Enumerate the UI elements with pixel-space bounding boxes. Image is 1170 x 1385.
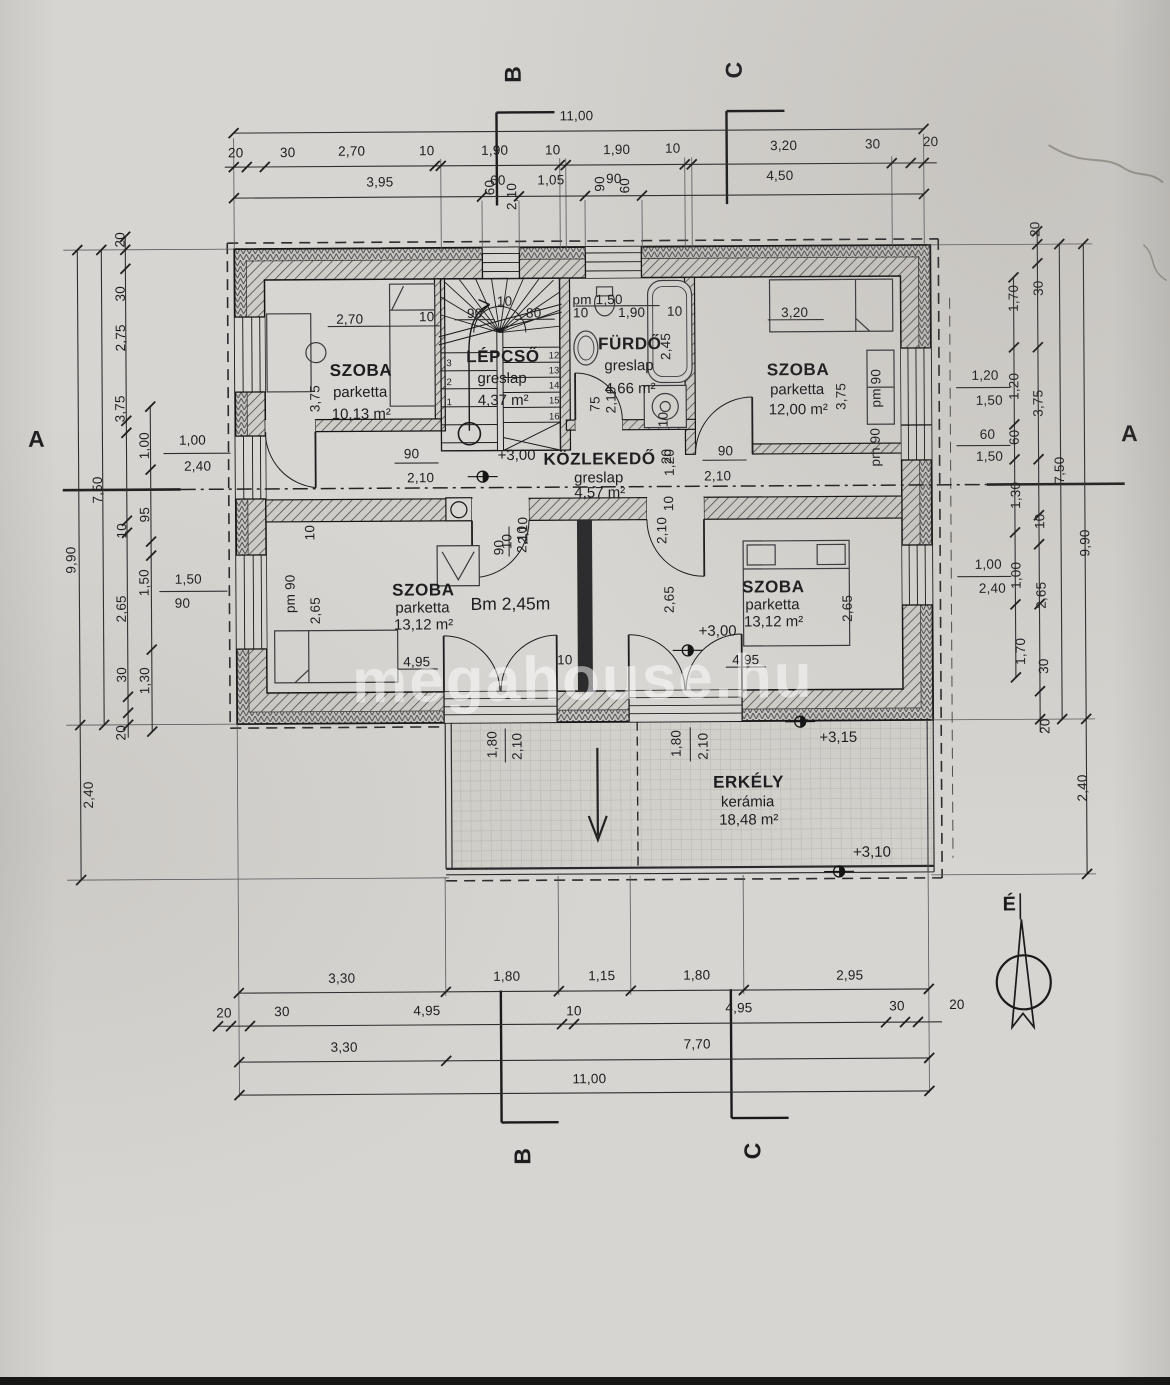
- room-area-label: 10,13 m²: [332, 407, 391, 422]
- room-area-label: 4,57 m²: [574, 485, 625, 500]
- dim-label: 1,20: [1007, 373, 1021, 400]
- dim-label: 1,20: [971, 369, 998, 383]
- hall-cabinet: [446, 498, 472, 521]
- dim-label: 10: [662, 496, 676, 512]
- dim-label: 30: [1037, 658, 1051, 674]
- dim-label: 1,00: [1009, 562, 1023, 589]
- dim-label: 10: [1033, 513, 1047, 529]
- dim-label: 3,75: [113, 395, 127, 422]
- paper-crease-marks: [1049, 144, 1167, 281]
- dim-label: 1,50: [137, 569, 151, 596]
- dim-label: 20: [1028, 221, 1042, 237]
- room-floor-label: greslap: [574, 470, 623, 485]
- dim-label: 95: [138, 507, 152, 523]
- dim-label: 2,40: [1076, 774, 1090, 801]
- dim-label: 10: [115, 523, 129, 539]
- room-area-label: 13,12 m²: [744, 614, 803, 629]
- dim-label: 90: [718, 444, 734, 458]
- dim-label: 20: [113, 232, 127, 248]
- dim-label: 20: [923, 135, 939, 149]
- dim-label: 3,30: [328, 972, 355, 986]
- room-floor-label: parketta: [333, 385, 387, 400]
- dim-label: 2,95: [836, 969, 863, 983]
- dim-label: 30: [889, 999, 905, 1013]
- dim-label: 90: [175, 597, 191, 611]
- room-area-label: 4,66 m²: [605, 381, 656, 396]
- north-label: É: [1003, 894, 1016, 914]
- room-name-label: ERKÉLY: [713, 773, 784, 790]
- dim-label: 1,30: [138, 667, 152, 694]
- dim-label: 4,95: [725, 1001, 752, 1015]
- dim-label: 7,50: [1053, 457, 1067, 484]
- dim-label: 1,80: [669, 730, 683, 757]
- dim-label: 2,10: [515, 526, 529, 553]
- level-label: +3,15: [819, 730, 857, 745]
- dim-label: 2,40: [82, 781, 96, 808]
- dim-label: 10: [419, 144, 435, 158]
- dim-label: 2: [446, 378, 451, 388]
- dim-label: 2,70: [338, 145, 365, 159]
- dim-label: 60: [980, 428, 996, 442]
- dim-label: 90: [593, 176, 607, 192]
- ceiling-height-label: Bm 2,45m: [471, 595, 551, 613]
- dim-label: 4,95: [413, 1004, 440, 1018]
- dim-label: 15: [549, 396, 560, 406]
- dim-label: 60: [1008, 430, 1022, 446]
- floor-plan-drawing: [0, 0, 1170, 1385]
- dim-label: 9,90: [64, 547, 78, 574]
- dim-label: 2,10: [704, 469, 731, 483]
- dim-label: 10: [566, 1004, 582, 1018]
- dim-label: 20: [1038, 718, 1052, 734]
- dim-label: 1,50: [976, 450, 1003, 464]
- section-letter: A: [28, 428, 45, 451]
- dim-label: 1,90: [481, 144, 508, 158]
- dim-label: 16: [549, 412, 560, 422]
- dim-label: 1: [447, 398, 452, 408]
- dim-label: 30: [274, 1005, 290, 1019]
- room-area-label: 12,00 m²: [769, 402, 828, 417]
- room-area-label: 13,12 m²: [394, 617, 453, 632]
- dim-label: 2,65: [663, 586, 677, 613]
- dim-label: 90: [467, 307, 483, 321]
- dim-label: 20: [949, 998, 965, 1012]
- dim-label: 10: [545, 143, 561, 157]
- room-name-label: SZOBA: [742, 578, 805, 595]
- dim-label: 1,50: [976, 394, 1003, 408]
- level-label: +3,00: [498, 448, 536, 463]
- scanned-floor-plan-sheet: 11,0020302,70101,90101,90103,2030203,956…: [0, 0, 1170, 1385]
- dim-label: 1,05: [537, 173, 564, 187]
- room-floor-label: parketta: [770, 382, 824, 397]
- dim-label: 1,15: [588, 969, 615, 983]
- dim-label: 80: [526, 307, 542, 321]
- dim-label: 30: [115, 667, 129, 683]
- dim-label: 2,65: [115, 595, 129, 622]
- dim-label: 13: [549, 366, 560, 376]
- room-area-label: 4,37 m²: [478, 393, 529, 408]
- dim-label: 2,75: [114, 324, 128, 351]
- dim-label: 2,65: [1035, 582, 1049, 609]
- scan-edge-bar: [0, 1377, 1170, 1385]
- dim-label: 1,90: [603, 143, 630, 157]
- dim-label: 4,95: [403, 655, 430, 669]
- dim-label: 4,95: [732, 653, 759, 667]
- dim-label: 10: [573, 306, 589, 320]
- dim-label: 30: [1032, 280, 1046, 296]
- dim-label: 30: [865, 137, 881, 151]
- dim-label: 14: [549, 381, 560, 391]
- dim-label: 1,20: [663, 449, 677, 476]
- dim-label: 2,65: [309, 597, 323, 624]
- dim-label: 3,30: [331, 1041, 358, 1055]
- dim-label: 11,00: [572, 1072, 606, 1086]
- dim-label: pm 90: [284, 574, 298, 613]
- dim-label: 1,80: [683, 968, 710, 982]
- dim-label: 9,90: [1078, 529, 1092, 556]
- level-label: +3,10: [853, 845, 891, 860]
- dim-label: 2,10: [510, 733, 524, 760]
- dim-label: 2,10: [505, 183, 519, 210]
- dim-label: 3: [446, 359, 451, 369]
- dim-label: 60: [483, 180, 497, 196]
- dim-label: 20: [216, 1006, 232, 1020]
- dim-label: 30: [114, 286, 128, 302]
- dim-label: 10: [657, 412, 671, 428]
- dim-label: 10: [497, 295, 513, 309]
- dim-label: 1,30: [1009, 482, 1023, 509]
- dim-label: 2,40: [979, 582, 1006, 596]
- dim-label: 1,50: [175, 573, 202, 587]
- dim-label: 1,70: [1014, 638, 1028, 665]
- room-floor-label: kerámia: [721, 794, 774, 809]
- dim-label: 2,65: [841, 595, 855, 622]
- dim-label: 60: [618, 178, 632, 194]
- dim-label: 2,10: [655, 517, 669, 544]
- dim-label: 30: [280, 146, 296, 160]
- dim-label: 7,70: [684, 1037, 711, 1051]
- room-name-label: FÜRDŐ: [598, 335, 662, 352]
- dim-label: 3,75: [1031, 390, 1045, 417]
- dim-label: pm 90: [869, 369, 883, 408]
- room-name-label: SZOBA: [392, 581, 455, 598]
- dim-label: 10: [557, 653, 573, 667]
- room-floor-label: greslap: [604, 358, 653, 373]
- section-letter: C: [723, 62, 746, 79]
- dim-label: 2,40: [184, 460, 211, 474]
- dim-label: 3,75: [834, 383, 848, 410]
- dim-label: 20: [228, 146, 244, 160]
- dim-label: 1,00: [179, 434, 206, 448]
- dim-label: 1,80: [485, 731, 499, 758]
- dim-label: 2,10: [696, 733, 710, 760]
- dim-label: pm 90: [869, 428, 883, 467]
- room-name-label: SZOBA: [330, 362, 393, 379]
- level-label: +3,00: [699, 624, 737, 639]
- dim-label: 1,00: [138, 432, 152, 459]
- dim-label: 12: [549, 351, 560, 361]
- dim-label: 1,70: [1007, 285, 1021, 312]
- dim-label: 2,10: [407, 471, 434, 485]
- dim-label: 11,00: [560, 109, 594, 123]
- dim-label: 75: [588, 396, 602, 412]
- dim-label: 90: [492, 540, 506, 556]
- room-floor-label: parketta: [395, 600, 449, 615]
- drawing-sheet: 11,0020302,70101,90101,90103,2030203,956…: [0, 0, 1170, 1385]
- dim-label: 3,95: [366, 175, 393, 189]
- room-area-label: 18,48 m²: [719, 812, 778, 827]
- room-name-label: LÉPCSŐ: [466, 348, 540, 365]
- dim-label: 4,50: [766, 169, 793, 183]
- room-floor-label: parketta: [745, 597, 799, 612]
- dim-label: 10: [665, 142, 681, 156]
- section-letter: C: [741, 1143, 764, 1160]
- dim-label: 10: [419, 310, 435, 324]
- dim-label: 2,70: [336, 313, 363, 327]
- dim-label: 3,20: [781, 306, 808, 320]
- dim-label: 3,75: [308, 385, 322, 412]
- dim-label: 10: [303, 525, 317, 541]
- dim-label: 1,90: [618, 306, 645, 320]
- dim-label: 1,80: [493, 970, 520, 984]
- dim-label: 1,00: [975, 558, 1002, 572]
- room-name-label: KÖZLEKEDŐ: [543, 450, 655, 468]
- room-floor-label: greslap: [477, 371, 526, 386]
- dim-label: 7,50: [91, 476, 105, 503]
- dim-label: 20: [114, 725, 128, 741]
- section-letter: B: [502, 66, 525, 83]
- dim-label: 90: [404, 447, 420, 461]
- dim-label: 10: [667, 305, 683, 319]
- section-letter: B: [511, 1148, 534, 1165]
- dim-label: 3,20: [770, 139, 797, 153]
- section-letter: A: [1121, 422, 1138, 445]
- room-name-label: SZOBA: [767, 361, 830, 378]
